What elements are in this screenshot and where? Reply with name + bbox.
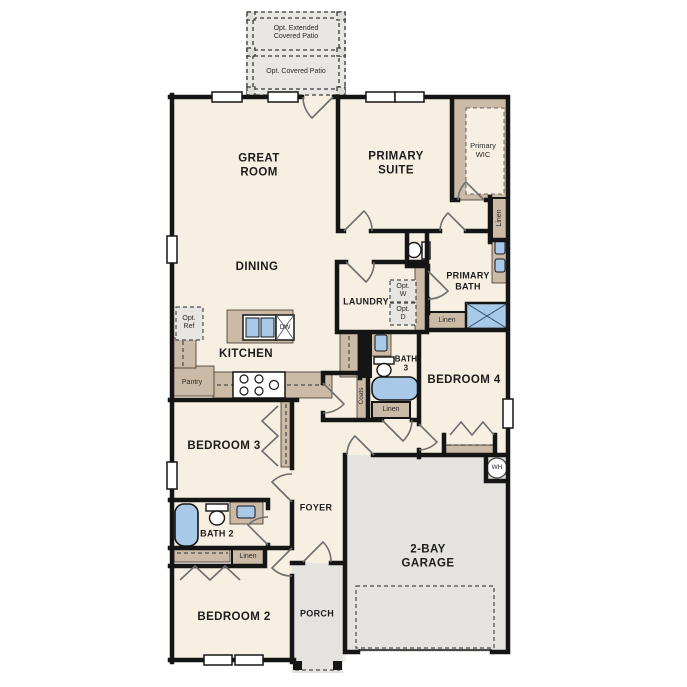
window [167, 462, 177, 489]
tub-icon [175, 504, 198, 546]
linen-closet-bath3 [372, 402, 410, 418]
wall-cabinet [172, 338, 196, 368]
pantry-cabinet [172, 366, 214, 396]
linen-closet-bath [428, 312, 466, 330]
window [235, 655, 263, 665]
window [268, 92, 298, 102]
linen-closet-wic [492, 198, 508, 240]
sink-icon [237, 506, 255, 518]
tub-icon [372, 377, 418, 400]
linen-closet-bed2 [232, 548, 265, 566]
sink-icon [375, 335, 387, 351]
window [366, 92, 395, 102]
window [395, 92, 424, 102]
window [212, 92, 242, 102]
floorplan-page: Opt. Extended Covered Patio Opt. Covered… [0, 0, 687, 687]
window [503, 399, 513, 428]
kitchen-sink-basin [246, 318, 259, 337]
window [204, 655, 232, 665]
sink-icon [495, 241, 505, 254]
kitchen-sink-basin [261, 318, 274, 337]
opt-washer-box [390, 280, 416, 302]
window [167, 236, 177, 263]
sink-icon [495, 259, 505, 272]
water-heater-icon [487, 458, 507, 478]
opt-dryer-box [390, 303, 416, 325]
opt-ref-box [176, 307, 203, 340]
floorplan-graphic [0, 0, 687, 687]
